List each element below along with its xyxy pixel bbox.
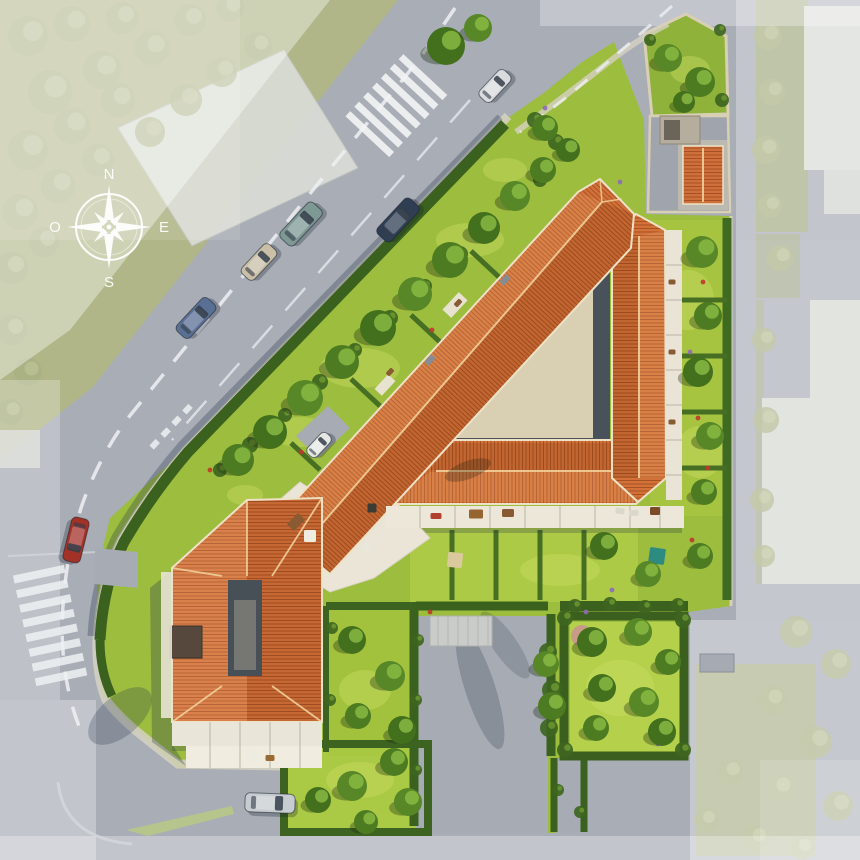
flower-cluster: [701, 280, 706, 285]
terrace-furniture-item: [669, 280, 676, 285]
bush: [638, 600, 652, 614]
bush: [552, 784, 564, 796]
driveway-entrance-west: [95, 548, 138, 588]
lawn-highlight: [520, 554, 600, 586]
bush: [410, 764, 422, 776]
flower-cluster: [299, 450, 304, 455]
flower-cluster: [696, 416, 701, 421]
fog-overlay: [736, 0, 860, 240]
flower-cluster: [543, 106, 548, 111]
fog-overlay: [0, 0, 240, 240]
light-well-floor: [234, 600, 256, 670]
bush: [675, 742, 691, 758]
garden-gate-east: [700, 654, 734, 672]
flower-cluster: [430, 328, 435, 333]
west-balcony-strip: [161, 572, 172, 718]
bush: [557, 610, 573, 626]
terrace-furniture-item: [447, 552, 463, 568]
bush: [324, 694, 336, 706]
flower-cluster: [584, 610, 589, 615]
terrace-furniture-item: [669, 420, 676, 425]
fog-overlay: [760, 760, 860, 860]
site-plan-canvas: N E S O: [0, 0, 860, 860]
terrace-furniture-item: [629, 510, 639, 517]
flower-cluster: [688, 350, 693, 355]
terrace-furniture-item: [469, 510, 483, 519]
lawn-highlight: [483, 158, 527, 182]
bush: [714, 24, 726, 36]
terrace-furniture-item: [266, 755, 275, 761]
bush: [603, 597, 617, 611]
terrace-furniture-item: [247, 750, 259, 762]
bush: [540, 719, 558, 737]
bush: [326, 622, 338, 634]
flower-cluster: [618, 180, 623, 185]
flower-cluster: [690, 538, 695, 543]
terrace-furniture-item: [669, 350, 676, 355]
parked-car-estate-silver: [245, 793, 299, 818]
site-plan-rendering: N E S O: [0, 0, 860, 860]
terrace-furniture-item: [502, 509, 514, 517]
carport: [430, 616, 492, 646]
bush: [574, 806, 586, 818]
east-balcony-band: [666, 230, 682, 500]
flower-cluster: [706, 466, 711, 471]
bin-enclosure-door: [664, 120, 680, 140]
bush: [671, 598, 685, 612]
terrace-furniture-item: [650, 507, 660, 515]
bush: [410, 694, 422, 706]
bush: [675, 612, 691, 628]
terrace-furniture-item: [615, 507, 625, 514]
flower-cluster: [208, 468, 213, 473]
terrace-furniture-item: [431, 513, 442, 519]
fog-overlay: [0, 700, 96, 860]
flower-cluster: [428, 610, 433, 615]
rooftop-plant-room: [170, 626, 202, 658]
bush: [715, 93, 729, 107]
bush: [644, 34, 656, 46]
bush: [568, 599, 582, 613]
garden-outbuilding: [678, 140, 728, 210]
flower-cluster: [610, 588, 615, 593]
terrace-furniture-item: [304, 530, 316, 542]
compass-label-south: S: [104, 274, 114, 291]
bush: [557, 742, 573, 758]
bush: [412, 634, 424, 646]
fog-overlay: [736, 240, 860, 620]
fog-overlay: [0, 836, 860, 860]
terrace-furniture-item: [368, 504, 377, 513]
